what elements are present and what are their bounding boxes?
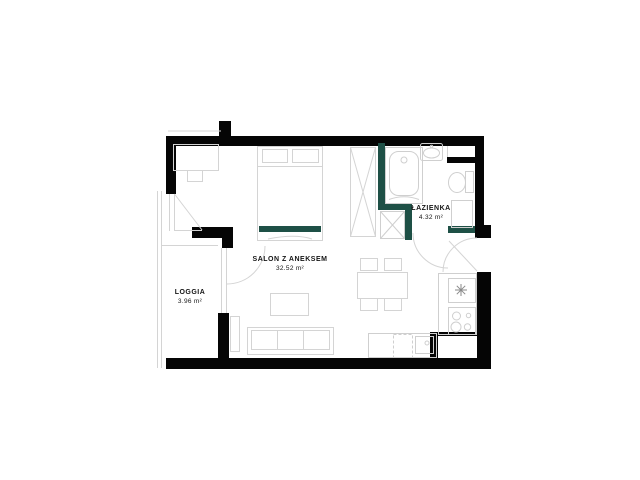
bed-bench (268, 236, 312, 239)
kitchen-faucet (425, 341, 429, 345)
floor-plan-drawing (0, 0, 640, 480)
partition-bath-door-jamb (405, 210, 412, 240)
partition-bath-left (378, 143, 385, 210)
window-casement-diagonal (175, 194, 203, 230)
bathtub-drain (401, 157, 407, 163)
wall-loggia-top (192, 227, 233, 238)
bathtub-inner (390, 152, 419, 196)
floor-plan: SALON Z ANEKSEM 32.52 m² ŁAZIENKA 4.32 m… (0, 0, 640, 480)
entry-door-arc (443, 238, 477, 272)
dining-chair-1 (361, 259, 378, 271)
partition-washer-top (378, 203, 412, 210)
dishwasher (394, 335, 413, 358)
sink-star-icon (455, 284, 467, 296)
wall-loggia-top-corner (222, 238, 233, 248)
toilet-tank (466, 172, 474, 193)
burner-4 (464, 324, 470, 330)
pillow-right (293, 150, 319, 163)
burner-1 (453, 312, 461, 320)
wall-bottom (166, 358, 491, 369)
wall-top-stub (219, 121, 231, 137)
dining-chair-2 (385, 259, 402, 271)
salon-furniture (174, 145, 408, 355)
washbasin-bowl (424, 148, 440, 158)
toilet-bowl (449, 173, 466, 193)
loggia-door-arc (227, 246, 265, 284)
bathtub-faucet (389, 197, 419, 200)
bathroom-door-arc (413, 233, 448, 268)
dining-chair-3 (361, 299, 378, 311)
bed-runner (259, 226, 321, 232)
bathroom-cabinet (452, 201, 473, 228)
wall-shaft-bar (447, 157, 484, 163)
desk-chair (188, 171, 203, 182)
desk (174, 145, 219, 171)
sofa-cushions (252, 331, 330, 350)
dining-chair-4 (385, 299, 402, 311)
washbasin-tap (430, 145, 432, 147)
sofa (248, 328, 334, 355)
burner-3 (466, 313, 470, 317)
dining-table (358, 273, 408, 299)
wall-right-upper (475, 136, 484, 238)
burner-2 (451, 322, 461, 332)
wall-right-lower (477, 272, 491, 369)
entry-door-leaf (449, 241, 477, 271)
kitchen (369, 274, 477, 358)
wall-entry-pillar (475, 225, 491, 238)
radiator (231, 317, 240, 352)
coffee-table (271, 294, 309, 316)
pillow-left (263, 150, 288, 163)
